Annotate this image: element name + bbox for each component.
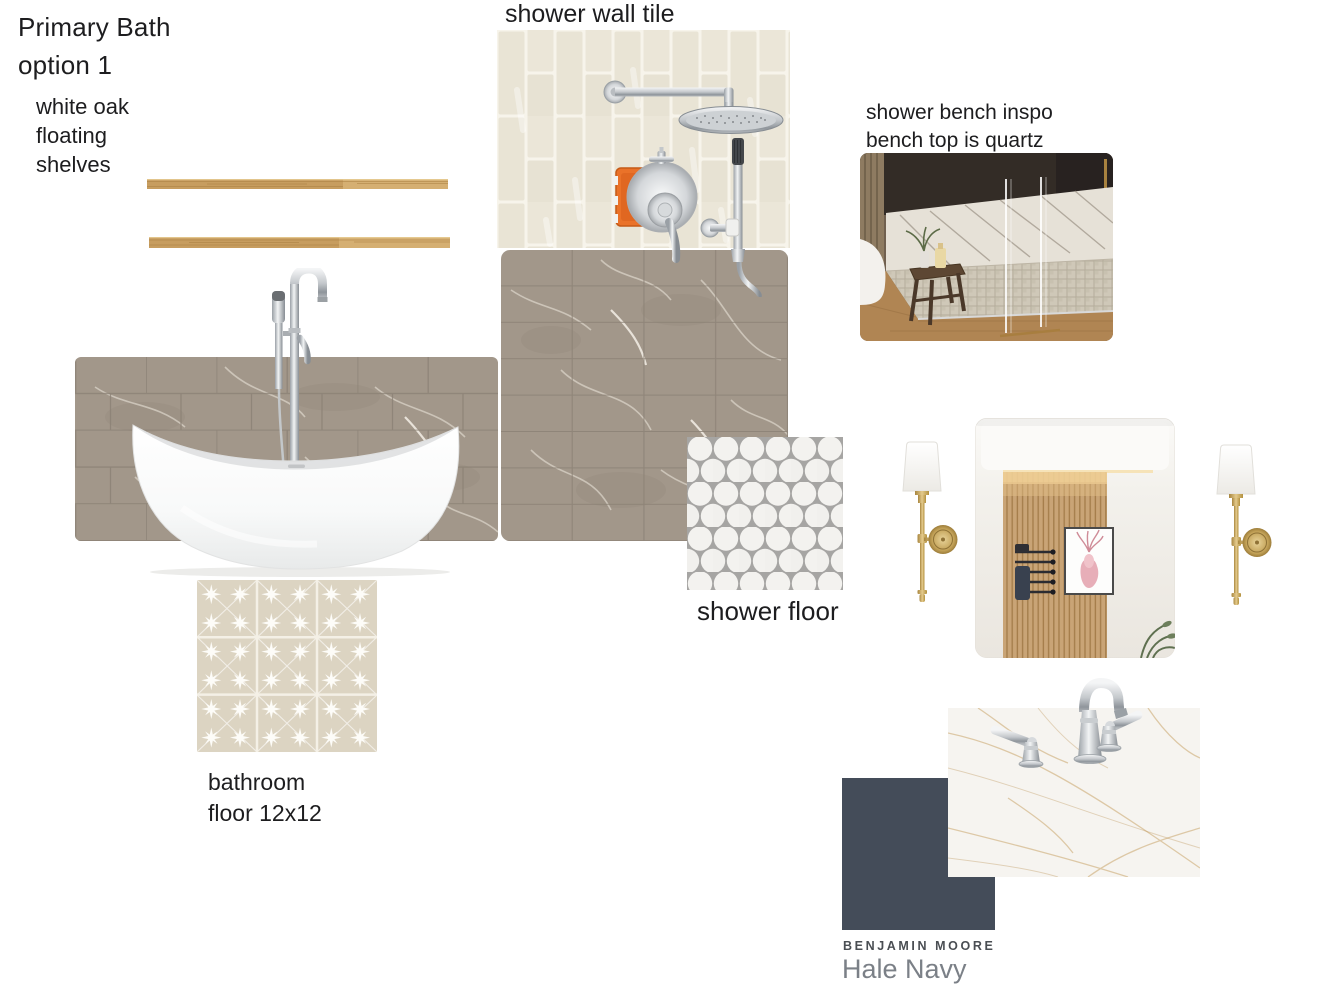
hand-shower <box>701 138 759 297</box>
label-shower-wall-tile: shower wall tile <box>505 0 675 29</box>
wall-sconce-image <box>886 438 958 608</box>
tub-filler-faucet <box>272 269 328 482</box>
white-oak-shelf-image <box>149 237 450 248</box>
paint-name-label: Hale Navy <box>842 954 967 985</box>
shower-fixture-image <box>593 52 798 297</box>
label-shower-bench: shower bench inspo bench top is quartz <box>866 99 1053 155</box>
bathroom-floor-tile-image <box>197 580 377 752</box>
label-white-oak-shelves: white oak floating shelves <box>36 92 129 179</box>
shower-valve <box>612 147 697 259</box>
paint-brand-label: BENJAMIN MOORE <box>843 939 995 953</box>
towel-hooks <box>1015 544 1056 600</box>
page-title: Primary Bath option 1 <box>18 8 171 84</box>
white-oak-shelf-image <box>147 179 448 189</box>
label-bathroom-floor: bathroom floor 12x12 <box>208 767 322 829</box>
rain-shower-head <box>679 107 783 134</box>
mood-board: Primary Bath option 1 white oak floating… <box>0 0 1334 1000</box>
mirror-illustration <box>975 418 1175 658</box>
widespread-faucet-image <box>980 670 1150 775</box>
bathtub-image <box>112 268 487 578</box>
shower-floor-tile-image <box>687 437 843 590</box>
label-shower-floor: shower floor <box>697 596 839 627</box>
deer-art-print <box>1065 528 1113 594</box>
faucet-handle-left <box>995 730 1043 768</box>
vanity-mirror-photo <box>975 418 1175 658</box>
bench-photo-illustration <box>860 153 1113 341</box>
faucet-handle-right <box>1097 715 1138 752</box>
shower-bench-photo <box>860 153 1113 341</box>
wall-sconce-image <box>1200 441 1272 611</box>
